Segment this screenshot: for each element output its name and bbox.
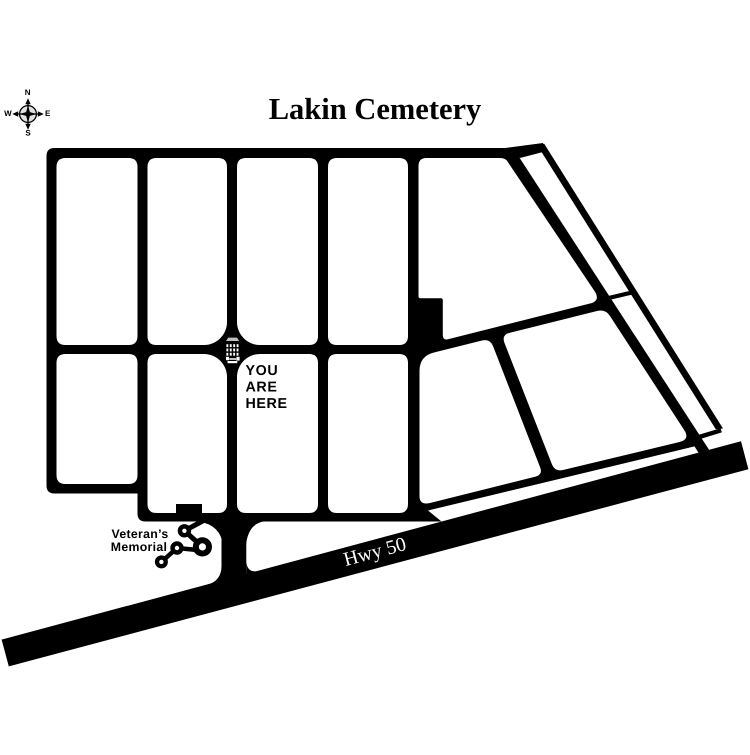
svg-text:E: E <box>45 109 51 118</box>
svg-text:Veteran’s: Veteran’s <box>112 527 169 541</box>
svg-text:HERE: HERE <box>246 396 288 412</box>
svg-text:YOU: YOU <box>246 363 279 379</box>
svg-text:Lakin Cemetery: Lakin Cemetery <box>269 92 482 126</box>
svg-text:N: N <box>25 88 31 97</box>
svg-text:W: W <box>4 109 12 118</box>
svg-text:Memorial: Memorial <box>111 540 167 554</box>
svg-text:S: S <box>25 128 31 137</box>
svg-text:ARE: ARE <box>246 379 278 395</box>
